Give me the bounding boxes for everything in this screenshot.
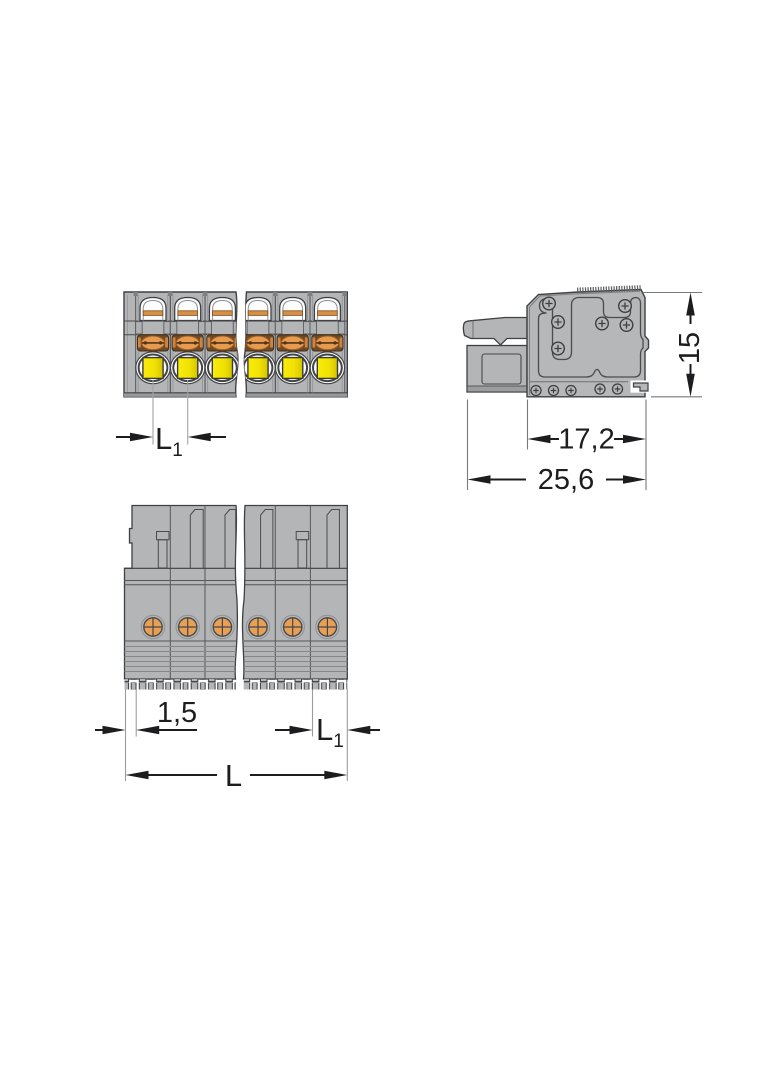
serrated-edge	[125, 679, 237, 690]
bottom-view	[125, 506, 348, 690]
arrow-left-icon	[136, 726, 159, 735]
clamp-screw	[211, 615, 234, 638]
dim-side-total-depth: 25,6	[468, 400, 647, 497]
screw	[549, 386, 559, 396]
arrow-left-icon	[126, 771, 149, 780]
drawing-page: L1	[0, 0, 784, 1066]
dim-label-side-height: 15	[674, 332, 706, 364]
dim-bottom-total-length: L	[126, 758, 348, 793]
dim-label-front-pitch: L1	[155, 421, 183, 461]
screw	[619, 300, 632, 313]
screw	[543, 297, 556, 310]
clamp-screw	[141, 615, 164, 638]
screw	[552, 342, 565, 355]
arrow-left-icon	[468, 475, 491, 484]
bottom-strip	[124, 393, 237, 397]
clamp-screw	[246, 615, 269, 638]
dim-label-side-total-depth: 25,6	[538, 464, 594, 496]
bottom-strip	[245, 393, 347, 397]
front-view	[124, 292, 347, 397]
arrow-left-icon	[188, 433, 211, 442]
arrow-right-icon	[324, 771, 347, 780]
clamp-screw	[176, 615, 199, 638]
bottom-left-body	[125, 506, 238, 680]
arrow-right-icon	[103, 726, 126, 735]
screw	[531, 386, 541, 396]
plug-foot	[468, 386, 527, 392]
screw	[595, 384, 605, 394]
screw	[620, 319, 633, 332]
dim-label-side-body-depth: 17,2	[558, 424, 614, 456]
clamp-screw	[316, 615, 339, 638]
front-right-poles	[239, 292, 348, 397]
dim-bottom-edge-offset: 1,5	[95, 690, 197, 782]
arrow-down-icon	[686, 374, 695, 397]
arrow-right-icon	[130, 433, 153, 442]
serrated-edge	[244, 679, 347, 690]
screw	[596, 317, 609, 330]
arrow-right-icon	[623, 435, 646, 444]
dim-side-height: 15	[644, 293, 707, 397]
dim-label-bottom-edge-offset: 1,5	[157, 697, 197, 729]
screw	[566, 386, 576, 396]
side-view	[463, 285, 648, 397]
screw	[552, 316, 565, 329]
dim-label-bottom-total-length: L	[225, 758, 242, 793]
clamp-screw	[281, 615, 304, 638]
arrow-left-icon	[528, 435, 551, 444]
arrow-left-icon	[347, 726, 370, 735]
dim-label-bottom-pitch: L1	[316, 712, 344, 752]
connector-technical-drawing: L1	[0, 0, 784, 1066]
arrow-right-icon	[623, 475, 646, 484]
screw	[613, 384, 623, 394]
bottom-right-body	[243, 506, 348, 680]
arrow-up-icon	[686, 293, 695, 316]
arrow-right-icon	[290, 726, 313, 735]
plug-shroud	[467, 346, 527, 393]
dim-bottom-pitch: L1	[275, 690, 380, 782]
